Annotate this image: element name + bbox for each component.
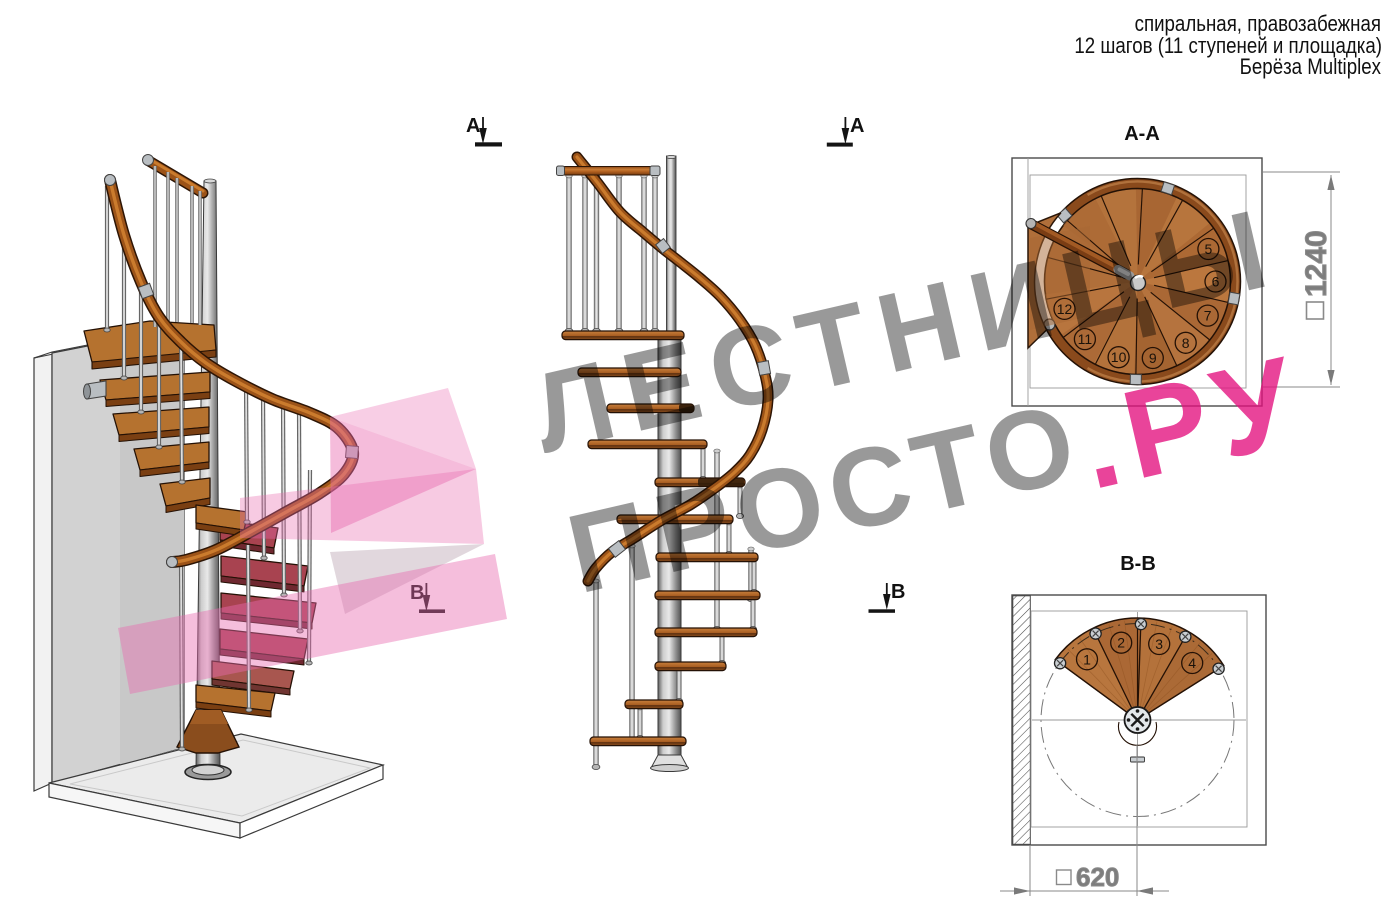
svg-text:1240: 1240 [1300,230,1333,297]
svg-text:спиральная, правозабежная: спиральная, правозабежная [1135,13,1381,37]
svg-text:3: 3 [1155,636,1163,652]
svg-text:В: В [891,581,905,603]
svg-text:А: А [466,115,480,137]
svg-text:10: 10 [1111,349,1127,365]
svg-text:В-В: В-В [1120,553,1156,575]
svg-text:8: 8 [1182,335,1190,351]
svg-text:1: 1 [1083,651,1091,667]
svg-text:Берёза Multiplex: Берёза Multiplex [1240,56,1381,80]
svg-text:А: А [850,115,864,137]
svg-text:2: 2 [1117,635,1125,651]
svg-text:А-А: А-А [1124,123,1160,145]
svg-text:4: 4 [1188,655,1196,671]
svg-text:620: 620 [1076,862,1119,892]
